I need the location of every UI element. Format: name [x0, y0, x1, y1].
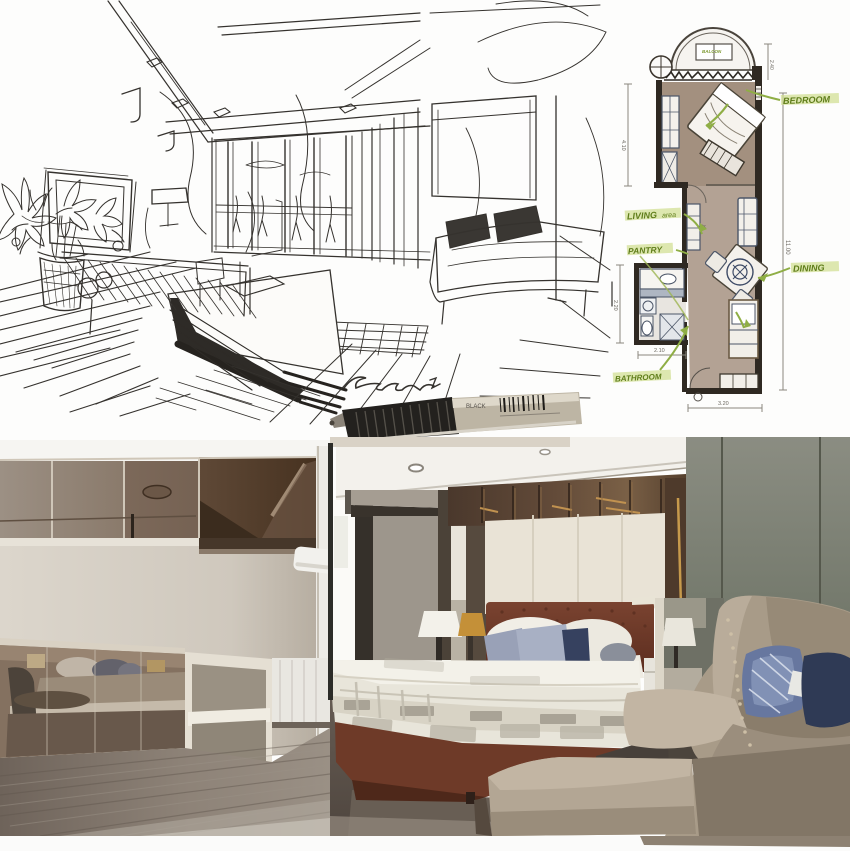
svg-text:BALCON: BALCON	[702, 49, 722, 54]
svg-text:LIVING: LIVING	[627, 210, 657, 222]
svg-text:2.20: 2.20	[612, 300, 618, 311]
svg-text:4.10: 4.10	[620, 140, 626, 151]
svg-text:BEDROOM: BEDROOM	[783, 94, 831, 106]
svg-text:2.10: 2.10	[654, 348, 665, 354]
svg-text:PANTRY: PANTRY	[628, 244, 664, 256]
svg-text:DINING: DINING	[793, 263, 825, 274]
svg-text:3.20: 3.20	[718, 401, 729, 407]
svg-text:11.00: 11.00	[784, 240, 790, 255]
svg-text:2.40: 2.40	[768, 60, 774, 70]
svg-text:area: area	[662, 212, 676, 220]
svg-text:BLACK: BLACK	[466, 404, 486, 410]
